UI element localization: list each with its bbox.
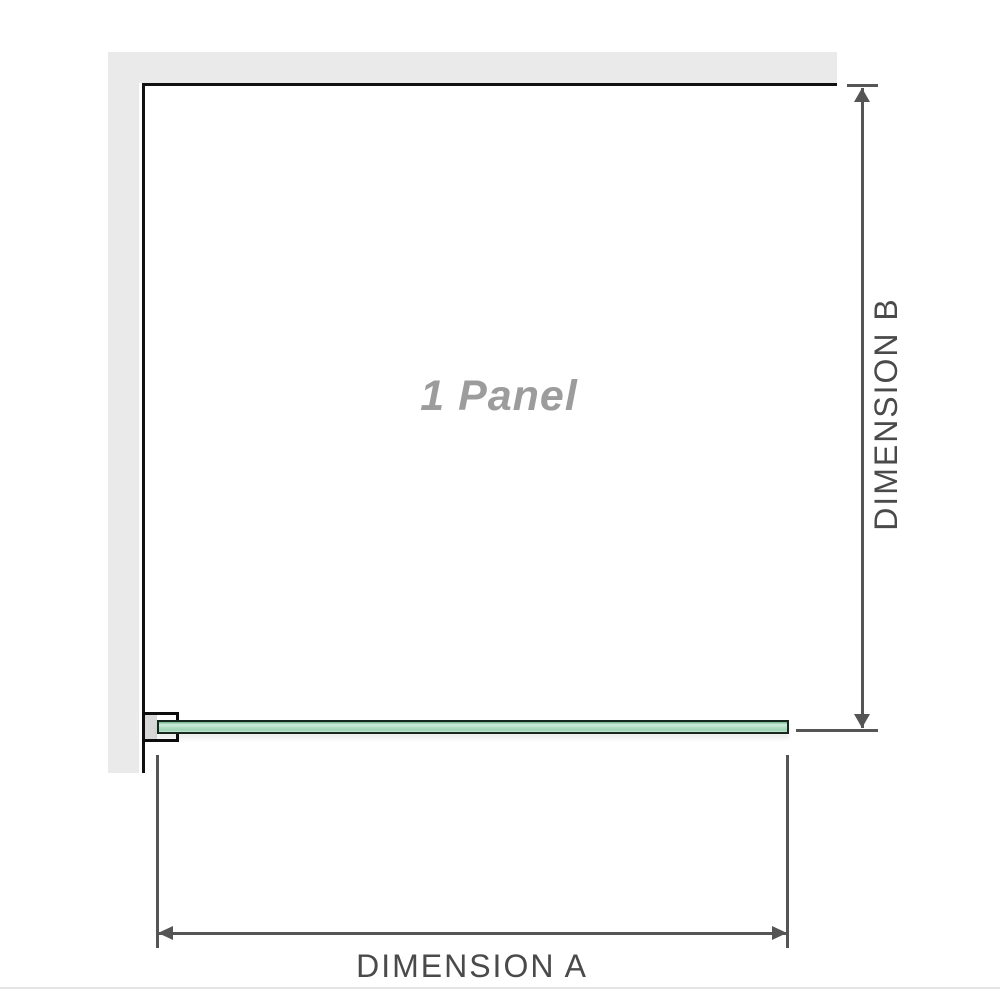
dimension-a-arrow-left-icon xyxy=(158,926,173,940)
bracket-wall-pad xyxy=(145,715,157,739)
top-wall xyxy=(108,52,837,83)
dimension-a-right-extension xyxy=(786,755,789,948)
left-wall xyxy=(108,52,139,773)
dimension-b-line xyxy=(861,88,864,728)
shower-panel-diagram: 1 Panel DIMENSION A DIMENSION B xyxy=(0,0,1000,1000)
dimension-b-label: DIMENSION B xyxy=(868,94,904,734)
dimension-b-bottom-tick xyxy=(796,729,878,732)
dimension-a-left-extension xyxy=(156,755,159,948)
left-wall-edge-line xyxy=(142,83,145,773)
dimension-b-arrow-up-icon xyxy=(854,88,870,102)
bottom-rule xyxy=(0,987,1000,989)
panel-count-label: 1 Panel xyxy=(349,372,649,420)
dimension-a-label: DIMENSION A xyxy=(157,948,787,984)
dimension-b-arrow-down-icon xyxy=(854,714,870,728)
dimension-b-top-tick xyxy=(847,84,878,87)
glass-panel xyxy=(157,720,789,734)
dimension-a-arrow-right-icon xyxy=(772,926,787,940)
top-wall-edge-line xyxy=(142,83,837,86)
dimension-a-line xyxy=(159,932,787,935)
